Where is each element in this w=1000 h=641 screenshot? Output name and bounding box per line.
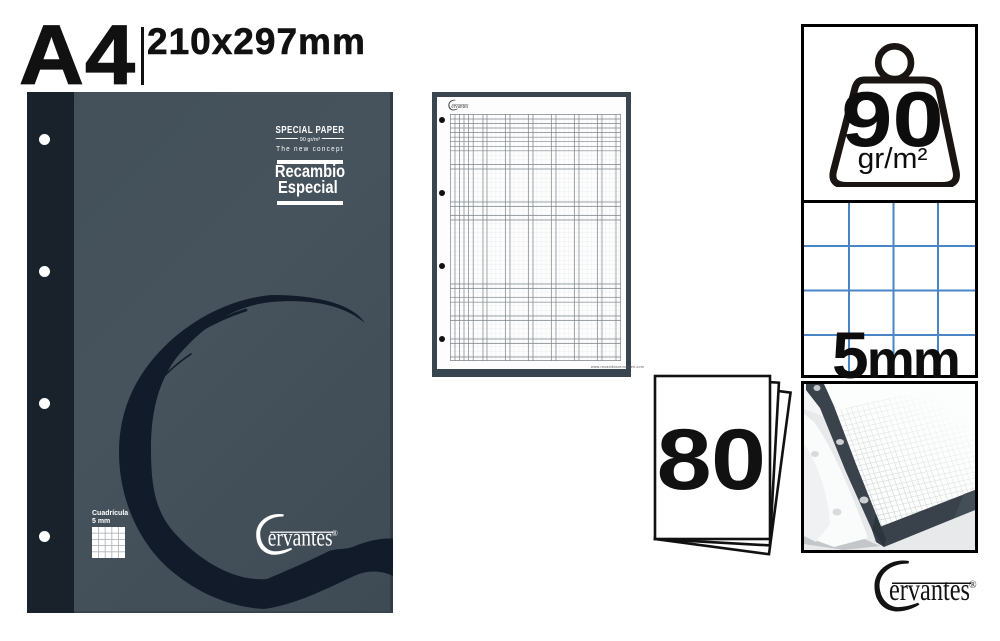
svg-text:ervantes: ervantes bbox=[268, 523, 333, 551]
svg-text:®: ® bbox=[969, 580, 977, 591]
svg-text:®: ® bbox=[332, 529, 338, 538]
svg-text:ervantes: ervantes bbox=[889, 573, 970, 608]
svg-text:80: 80 bbox=[657, 411, 766, 508]
